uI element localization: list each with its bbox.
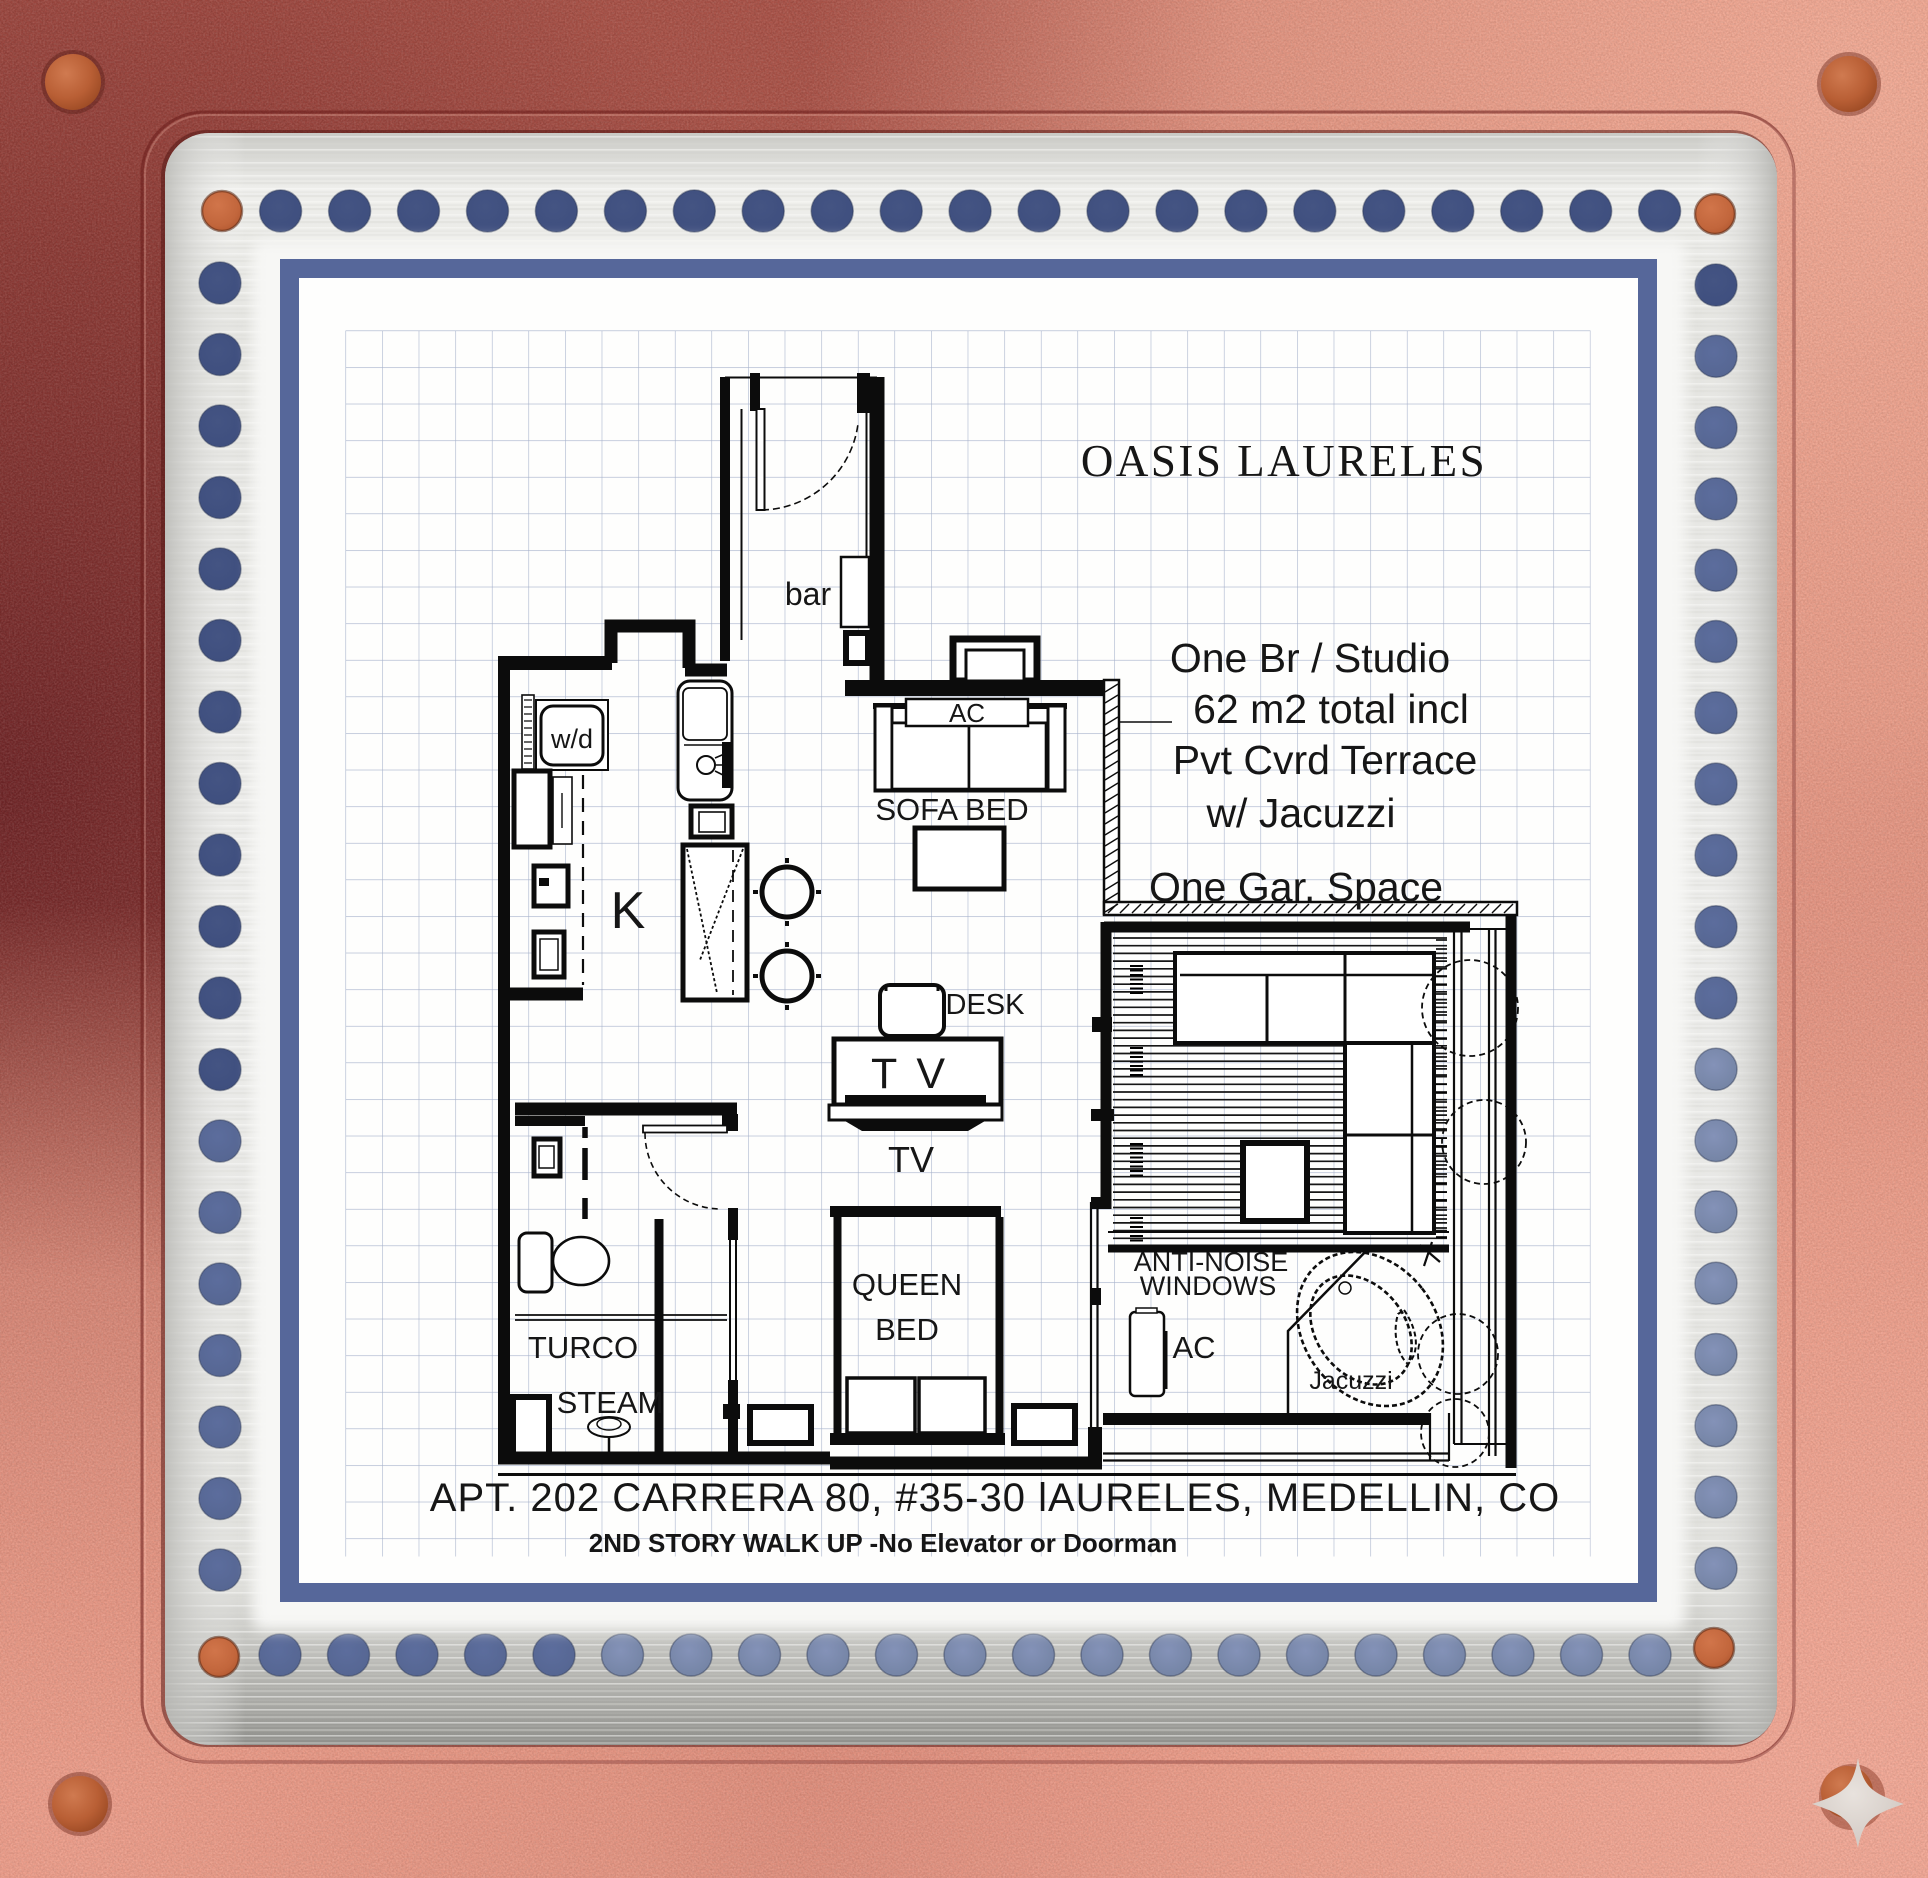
svg-text:BED: BED [875, 1312, 939, 1347]
svg-text:APT. 202 CARRERA 80, #35-30 lA: APT. 202 CARRERA 80, #35-30 lAURELES, ME… [430, 1476, 1560, 1520]
svg-text:w/d: w/d [550, 724, 593, 754]
svg-text:SOFA BED: SOFA BED [875, 792, 1028, 827]
svg-text:Pvt Cvrd Terrace: Pvt Cvrd Terrace [1173, 737, 1478, 783]
svg-text:w/ Jacuzzi: w/ Jacuzzi [1205, 790, 1395, 836]
svg-text:2ND STORY WALK UP -No Elevator: 2ND STORY WALK UP -No Elevator or Doorma… [589, 1528, 1177, 1558]
svg-text:K: K [611, 882, 646, 940]
svg-text:OASIS LAURELES: OASIS LAURELES [1081, 436, 1487, 486]
svg-text:DESK: DESK [946, 989, 1026, 1021]
svg-text:QUEEN: QUEEN [852, 1267, 962, 1302]
svg-text:bar: bar [785, 576, 832, 612]
svg-text:62 m2 total incl: 62 m2 total incl [1193, 686, 1469, 732]
svg-text:One Gar. Space: One Gar. Space [1149, 864, 1443, 910]
svg-text:AC: AC [1172, 1330, 1215, 1365]
svg-text:STEAM: STEAM [557, 1385, 664, 1420]
svg-text:One Br / Studio: One Br / Studio [1170, 635, 1450, 681]
svg-text:WINDOWS: WINDOWS [1140, 1271, 1276, 1301]
svg-text:Jacuzzi: Jacuzzi [1309, 1367, 1392, 1395]
svg-text:TURCO: TURCO [528, 1330, 638, 1365]
svg-text:TV: TV [888, 1139, 934, 1180]
svg-text:T V: T V [871, 1050, 949, 1098]
svg-text:AC: AC [949, 698, 985, 728]
